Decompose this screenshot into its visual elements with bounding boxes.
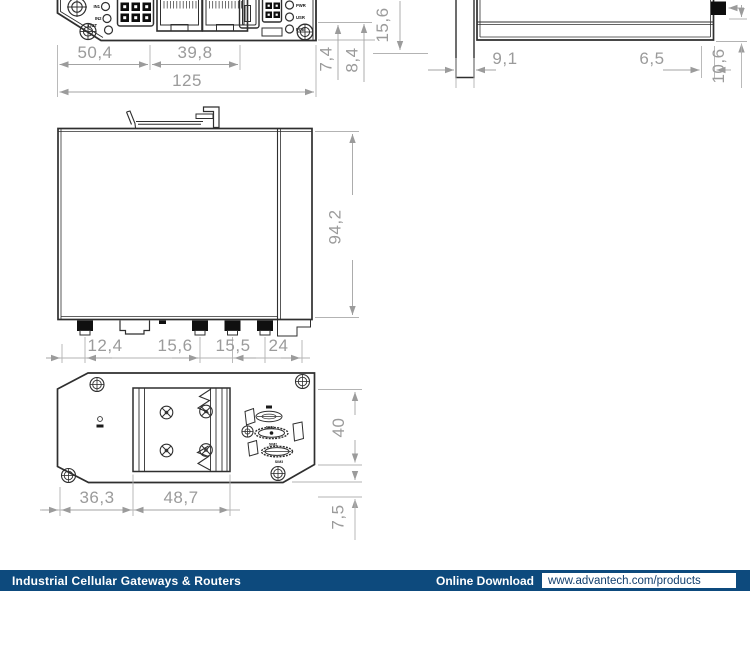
dim-front-led-offset: 7,4 [317,46,336,71]
dim-top-ant2: 15,5 [215,336,250,355]
status-led-label-pwr: PWR [296,3,306,8]
io-led-label-in2: IN2 [95,16,102,21]
dim-top-ant3: 24 [269,336,289,355]
io-connector-icon [262,0,282,36]
sim-cover-2-icon [255,427,288,438]
plate-screws [160,405,212,457]
dim-bottom-left: 36,3 [79,488,114,507]
dim-side-clip: 9,1 [492,49,517,68]
dim-top-sim: 15,6 [157,336,192,355]
dim-front-width-mid: 39,8 [177,43,212,62]
sim-flag-2 [293,422,304,441]
sim-flag-3 [248,441,258,457]
din-plate [133,388,230,472]
din-clip-icon [127,107,220,128]
sim-cover-label-3: SIM3 [275,460,283,464]
front-view: IN1 IN2 OUT [58,0,317,41]
front-view-dimensions: 50,4 39,8 125 7,4 8,4 [58,23,376,98]
dim-bottom-height: 40 [329,418,348,438]
dim-side-conn-height: 10,6 [709,48,728,83]
side-view-dimensions: 15,6 9,1 6,5 10,6 [373,1,747,88]
footer-url-text[interactable]: www.advantech.com/products [548,575,701,587]
sim-cover-3-icon [262,446,293,457]
dimension-drawing: IN1 IN2 OUT [0,0,750,650]
footer-url-box[interactable]: www.advantech.com/products [541,572,737,589]
footer-bar: Industrial Cellular Gateways & Routers O… [0,570,750,591]
dim-front-width-total: 125 [172,71,202,90]
ethernet-port-2-icon [203,0,248,31]
dim-front-width-left: 50,4 [77,43,112,62]
dim-bottom-plate: 48,7 [163,488,198,507]
footer-download-label: Online Download [436,574,534,588]
io-led-label-out: OUT [88,23,97,28]
sim-cover-1-icon [256,406,282,422]
dim-top-ant1: 12,4 [87,336,122,355]
wifi-connector-icon [711,2,726,16]
antenna-connector-icon [67,0,87,17]
power-connector-icon [118,0,154,26]
sim-tray-icon [120,321,150,335]
bottom-view: SIM1 SIM2 SIM3 [58,373,315,483]
io-led-label-in1: IN1 [93,4,100,9]
sim-flag-1 [245,409,255,426]
sim-cover-label-2: SIM2 [269,443,277,447]
dim-side-conn: 6,5 [639,49,664,68]
top-view [58,107,312,336]
dim-side-height: 15,6 [373,7,392,42]
dim-bottom-offset: 7,5 [329,504,348,529]
ground-point-icon [97,417,104,428]
datasheet-page: IN1 IN2 OUT [0,0,750,650]
antenna-connectors-row [77,320,311,337]
dim-front-screw-offset: 8,4 [343,47,362,72]
dim-top-depth: 94,2 [326,209,345,244]
usb-port-icon [240,0,260,28]
footer-category-label: Industrial Cellular Gateways & Routers [12,574,241,588]
panel-screw-icon [297,24,313,40]
sim-cover-area: SIM1 SIM2 SIM3 [242,406,304,465]
sim-screw-icon [242,426,253,437]
ethernet-port-1-icon [157,0,202,31]
status-led-label-usr: USR [296,15,305,20]
